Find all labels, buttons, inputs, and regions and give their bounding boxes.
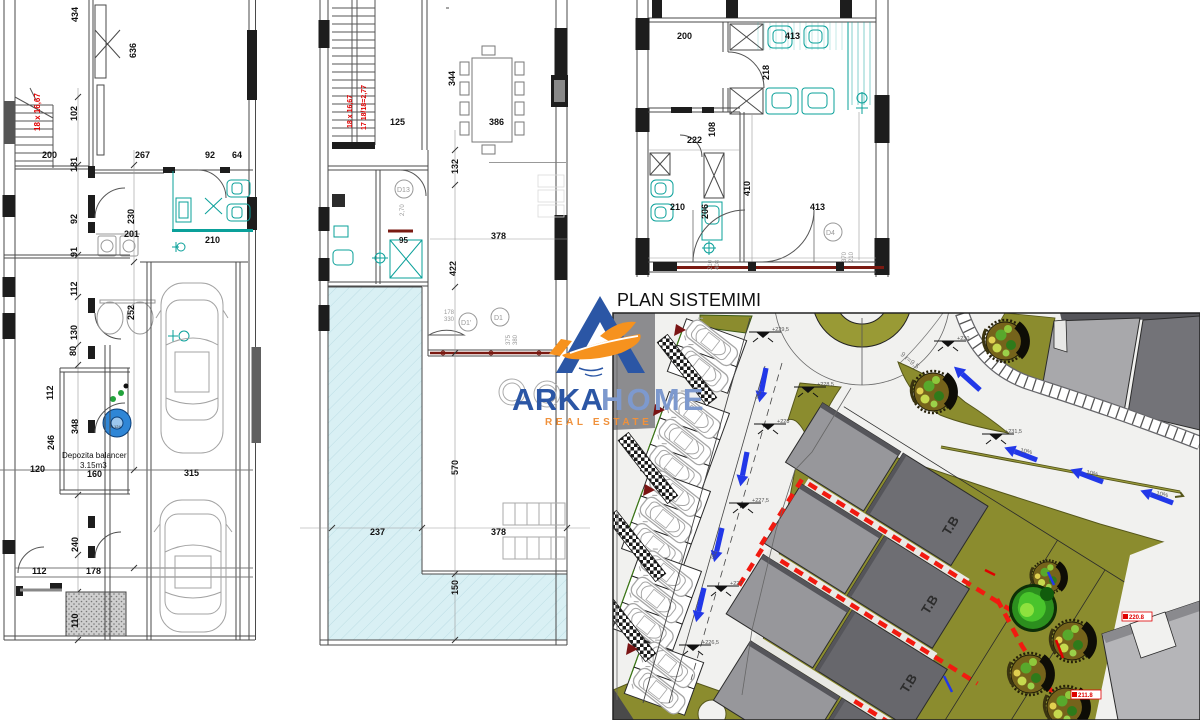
svg-text:+227,5: +227,5	[752, 498, 769, 504]
svg-text:222: 222	[687, 135, 702, 145]
svg-text:18 x 16,67: 18 x 16,67	[33, 93, 42, 131]
svg-text:92: 92	[69, 214, 79, 224]
svg-text:220.8: 220.8	[1129, 615, 1145, 621]
svg-text:375: 375	[506, 334, 512, 345]
svg-text:434: 434	[70, 7, 80, 22]
svg-text:2,70: 2,70	[400, 204, 406, 216]
svg-text:102: 102	[69, 106, 79, 121]
svg-text:64: 64	[232, 150, 242, 160]
svg-text:+230: +230	[957, 336, 969, 342]
svg-text:3.15m3: 3.15m3	[80, 461, 107, 470]
svg-text:112: 112	[32, 566, 47, 576]
svg-text:252: 252	[126, 305, 136, 320]
svg-text:91: 91	[69, 247, 79, 257]
svg-text:408: 408	[715, 259, 721, 270]
svg-text:210: 210	[670, 202, 685, 212]
svg-text:413: 413	[810, 202, 825, 212]
svg-text:330: 330	[444, 317, 455, 323]
svg-text:200: 200	[42, 150, 57, 160]
svg-text:210: 210	[849, 251, 855, 262]
svg-text:210: 210	[708, 259, 714, 270]
svg-text:378: 378	[491, 527, 506, 537]
svg-text:410: 410	[742, 181, 752, 196]
svg-text:130: 130	[69, 325, 79, 340]
svg-text:+231,5: +231,5	[1005, 429, 1022, 435]
svg-text:D1: D1	[494, 315, 503, 322]
svg-text:348: 348	[70, 419, 80, 434]
svg-text:92: 92	[205, 150, 215, 160]
svg-text:378: 378	[491, 231, 506, 241]
svg-text:178: 178	[444, 310, 455, 316]
svg-text:413: 413	[785, 31, 800, 41]
svg-text:18 x 16,67: 18 x 16,67	[347, 95, 354, 128]
svg-text:+229,5: +229,5	[772, 327, 789, 333]
svg-text:230: 230	[126, 209, 136, 224]
svg-text:+227: +227	[730, 581, 742, 587]
svg-text:110: 110	[70, 613, 80, 628]
svg-text:+228: +228	[777, 419, 789, 425]
svg-text:112: 112	[69, 281, 79, 296]
svg-text:HOME: HOME	[601, 382, 707, 417]
svg-text:211.8: 211.8	[1078, 693, 1093, 699]
svg-text:380: 380	[513, 334, 519, 345]
svg-text:636: 636	[128, 43, 138, 58]
svg-text:200: 200	[677, 31, 692, 41]
svg-text:160: 160	[87, 469, 102, 479]
svg-text:ARKA: ARKA	[512, 382, 604, 417]
svg-text:80: 80	[68, 346, 78, 356]
svg-text:370: 370	[842, 251, 848, 262]
svg-text:D13: D13	[397, 187, 410, 194]
svg-text:344: 344	[447, 71, 457, 86]
svg-text:386: 386	[489, 117, 504, 127]
svg-text:D4: D4	[826, 230, 835, 237]
svg-text:125: 125	[390, 117, 405, 127]
svg-text:PLAN SISTEMIMI: PLAN SISTEMIMI	[617, 290, 761, 310]
svg-text:315: 315	[184, 468, 199, 478]
svg-text:+228,5: +228,5	[817, 382, 834, 388]
svg-text:218: 218	[761, 65, 771, 80]
svg-text:267: 267	[135, 150, 150, 160]
svg-text:120: 120	[30, 464, 45, 474]
svg-text:422: 422	[448, 261, 458, 276]
svg-text:240: 240	[70, 537, 80, 552]
svg-text:D1': D1'	[461, 320, 471, 327]
svg-text:206: 206	[700, 204, 710, 219]
svg-text:246: 246	[46, 435, 56, 450]
svg-text:N,124: N,124	[110, 424, 121, 429]
svg-text:237: 237	[370, 527, 385, 537]
svg-text:181: 181	[69, 157, 79, 172]
svg-text:REAL ESTATE: REAL ESTATE	[545, 417, 652, 428]
svg-text:210: 210	[205, 235, 220, 245]
svg-text:+226,5: +226,5	[702, 640, 719, 646]
svg-text:17 18/18=2,77: 17 18/18=2,77	[361, 85, 368, 130]
svg-text:108: 108	[707, 122, 717, 137]
svg-text:112: 112	[45, 385, 55, 400]
svg-text:201: 201	[124, 229, 139, 239]
svg-text:Depozita balancer: Depozita balancer	[62, 451, 127, 460]
svg-text:178: 178	[86, 566, 101, 576]
svg-text:95: 95	[399, 236, 408, 245]
